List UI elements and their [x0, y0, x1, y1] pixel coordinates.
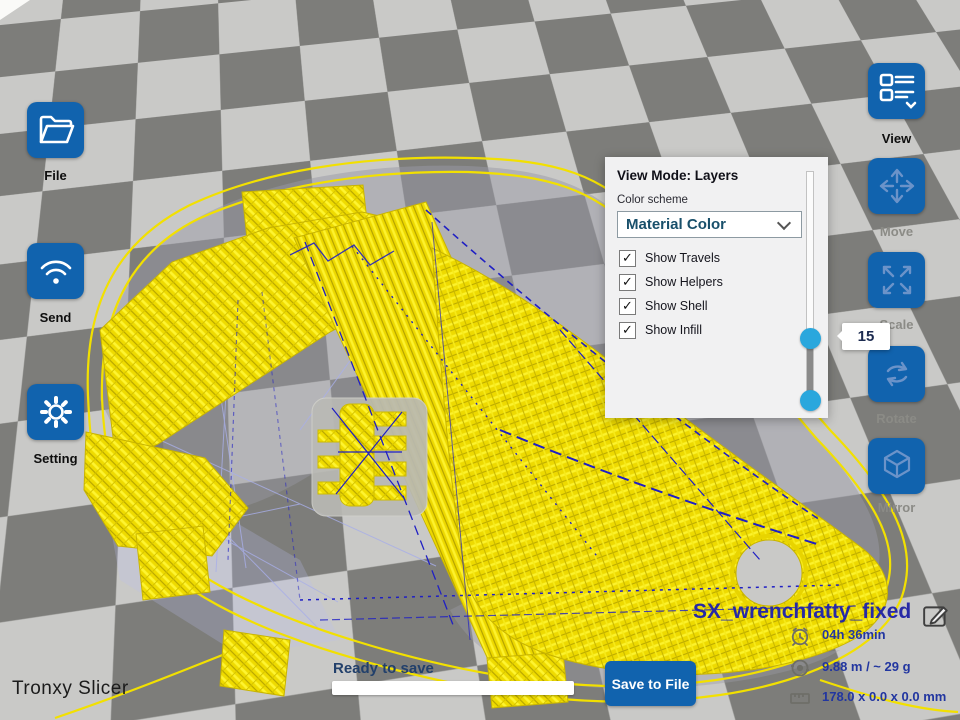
move-arrows-icon: [869, 158, 925, 214]
color-scheme-label: Color scheme: [617, 194, 688, 206]
show-helpers-label: Show Helpers: [645, 275, 723, 289]
layer-slider-upper-handle[interactable]: [800, 328, 821, 349]
checkbox-show-helpers[interactable]: [619, 274, 636, 291]
view-label: View: [868, 131, 925, 146]
status-message: Ready to save: [333, 660, 434, 677]
color-scheme-select[interactable]: Material Color: [617, 211, 802, 238]
handle-hole-ring: [732, 536, 806, 610]
send-button[interactable]: [27, 243, 84, 299]
save-to-file-label: Save to File: [612, 676, 690, 692]
show-shell-label: Show Shell: [645, 299, 708, 313]
save-to-file-button[interactable]: Save to File: [605, 661, 696, 706]
view-mode-panel: View Mode: Layers Color scheme Material …: [605, 157, 828, 418]
plate-corner-highlight: [0, 0, 30, 20]
tooltip-arrow: [830, 329, 844, 343]
worm-screw-detail: [312, 398, 427, 516]
layer-value-tooltip: 15: [842, 323, 890, 350]
rename-model-button[interactable]: [922, 602, 950, 630]
app-title: Tronxy Slicer: [12, 678, 129, 700]
checkbox-show-infill[interactable]: [619, 322, 636, 339]
print-time-value: 04h 36min: [822, 627, 886, 642]
progress-bar: [332, 681, 574, 695]
dimensions-value: 178.0 x 0.0 x 0.0 mm: [822, 689, 946, 704]
rotate-arrows-icon: [869, 346, 925, 402]
slicer-window: File Send Setting: [0, 0, 960, 720]
folder-icon: [28, 102, 84, 158]
wrench-bottom-patch: [220, 630, 290, 696]
view-button[interactable]: [868, 63, 925, 119]
wrench-small-square: [136, 526, 210, 600]
checkbox-show-shell[interactable]: [619, 298, 636, 315]
dimensions-ruler-icon: [788, 686, 812, 710]
mirror-cube-icon: [869, 438, 925, 494]
rotate-label: Rotate: [868, 411, 925, 426]
setting-button[interactable]: [27, 384, 84, 440]
gear-icon: [28, 384, 84, 440]
color-scheme-value: Material Color: [618, 216, 779, 233]
show-travels-label: Show Travels: [645, 251, 720, 265]
file-button[interactable]: [27, 102, 84, 158]
edit-pencil-icon: [922, 602, 950, 630]
model-name: SX_wrenchfatty_fixed: [693, 600, 911, 624]
scale-arrows-icon: [869, 252, 925, 308]
wrench-shaft-tip: [487, 652, 568, 708]
checkbox-show-travels[interactable]: [619, 250, 636, 267]
wifi-icon: [28, 243, 84, 299]
file-label: File: [27, 168, 84, 183]
mirror-button[interactable]: [868, 438, 925, 494]
view-mode-title: View Mode: Layers: [617, 168, 738, 183]
move-button[interactable]: [868, 158, 925, 214]
show-infill-label: Show Infill: [645, 323, 702, 337]
send-label: Send: [27, 310, 84, 325]
setting-label: Setting: [27, 451, 84, 466]
mirror-label: Mirror: [868, 500, 925, 515]
scale-button[interactable]: [868, 252, 925, 308]
layer-slider-lower-handle[interactable]: [800, 390, 821, 411]
rotate-button[interactable]: [868, 346, 925, 402]
view-options-icon: [869, 63, 925, 119]
filament-spool-icon: [788, 656, 812, 680]
chevron-down-icon: [777, 215, 791, 229]
layer-value: 15: [858, 328, 875, 345]
chevron-down-icon: [907, 103, 915, 107]
print-time-clock-icon: [788, 624, 812, 648]
material-usage-value: 9.88 m / ~ 29 g: [822, 659, 911, 674]
move-label: Move: [868, 224, 925, 239]
